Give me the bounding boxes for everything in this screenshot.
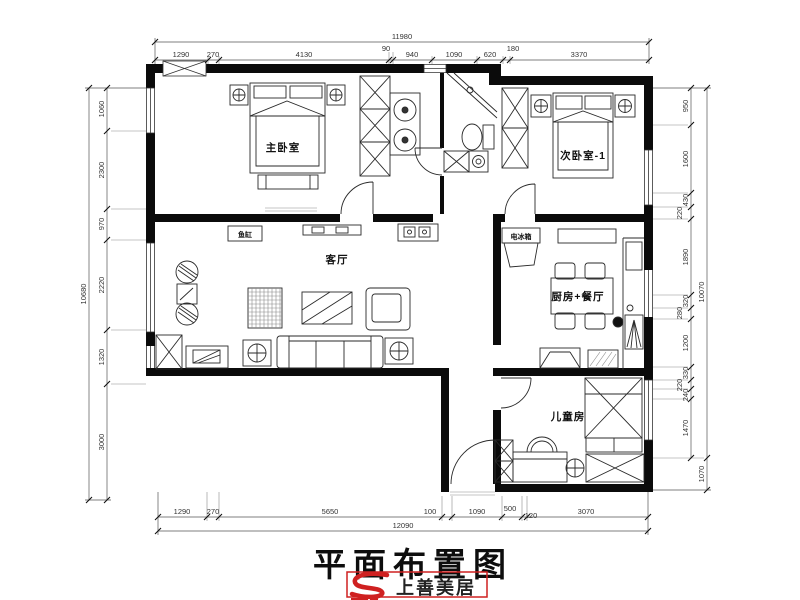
bath-door-arc: [415, 148, 442, 175]
console-table: [303, 225, 361, 235]
entry-threshold: [450, 492, 495, 495]
sofa: [277, 336, 383, 368]
room-label-master: 主卧室: [266, 141, 301, 154]
window-right-bedroom-icon: [644, 150, 653, 205]
window-right-kitchen-icon: [644, 270, 653, 317]
bed-bench: [258, 175, 318, 189]
window-top-left-icon: [163, 61, 206, 76]
second-bedroom-furniture: [502, 88, 635, 178]
dimension-chain-bottom: 1290 270 5650 100 1090 500 120 3070 1209…: [155, 492, 651, 535]
rug: [248, 288, 282, 328]
dining-chair: [555, 313, 575, 329]
dim-label: 2220: [97, 277, 106, 294]
kitchen-counter: [623, 238, 644, 370]
dim-label: 90: [382, 44, 390, 53]
kids-bed: [585, 378, 642, 452]
dim-label: 3370: [571, 50, 588, 59]
dim-label: 1320: [97, 349, 106, 366]
master-bed: [250, 83, 325, 173]
small-appliance: [588, 350, 618, 368]
dim-label: 270: [207, 507, 220, 516]
desk-chair: [527, 437, 557, 452]
dim-total-label: 11980: [392, 32, 412, 41]
dim-label: 430: [681, 194, 690, 207]
dim-label: 1070: [697, 466, 706, 483]
dim-label: 500: [504, 504, 517, 513]
dining-chair: [585, 313, 605, 329]
vanity-sinks: [390, 93, 420, 155]
dimension-chain-right: 950 1600 430 220 1890 320 280 1200 330 2…: [653, 85, 711, 493]
armchair: [366, 288, 410, 330]
dim-label: 220: [675, 207, 684, 220]
pass-counter: [398, 224, 438, 241]
master-door-arc: [341, 182, 373, 214]
dim-label: 120: [525, 511, 538, 520]
dining-chair: [555, 263, 575, 279]
side-cabinet: [156, 335, 182, 369]
floor-plan-drawing: 主卧室 次卧室-1 客厅 厨房+餐厅 儿童房 电冰箱 鱼缸 1290 270 4…: [0, 0, 800, 600]
bath-cabinet: [444, 151, 469, 172]
window-left-3-icon: [146, 346, 155, 368]
dim-label: 1890: [681, 249, 690, 266]
second-bedroom-door-arc: [505, 184, 535, 214]
room-label-kitchen: 厨房+餐厅: [551, 290, 604, 303]
dining-chair: [585, 263, 605, 279]
dim-label: 970: [97, 218, 106, 231]
dim-label: 4130: [296, 50, 313, 59]
living-room-furniture: [156, 224, 438, 369]
balcony-chair: [176, 303, 198, 325]
washer-icon: [469, 151, 488, 172]
plant-table: [385, 338, 413, 364]
second-bed: [553, 93, 613, 178]
dim-label: 1200: [681, 335, 690, 352]
balcony-table: [177, 284, 197, 304]
doormat: [265, 208, 317, 211]
dim-label: 270: [207, 50, 220, 59]
second-wardrobe: [502, 88, 528, 168]
room-label-living: 客厅: [325, 253, 349, 266]
dim-label: 180: [507, 44, 520, 53]
dim-label: 100: [424, 507, 437, 516]
kids-room-furniture: [495, 378, 644, 482]
floor-plan-page: 主卧室 次卧室-1 客厅 厨房+餐厅 儿童房 电冰箱 鱼缸 1290 270 4…: [0, 0, 800, 600]
kitchen-sink-icon: [613, 305, 643, 349]
dim-label: 5650: [322, 507, 339, 516]
stool: [566, 459, 584, 477]
dim-label: 1470: [681, 420, 690, 437]
dim-label: 330: [681, 367, 690, 380]
kitchen-console: [558, 229, 616, 243]
dim-label: 1600: [681, 151, 690, 168]
master-bedroom-furniture: [230, 76, 420, 211]
toilet-icon: [462, 124, 494, 150]
room-label-second: 次卧室-1: [560, 149, 606, 162]
dim-label: 1090: [469, 507, 486, 516]
dim-total-label: 10070: [697, 282, 706, 303]
dim-label: 320: [681, 295, 690, 308]
dim-label: 1290: [173, 50, 190, 59]
brand-name: 上善美居: [396, 577, 476, 598]
dim-label: 3070: [578, 507, 595, 516]
plant-table: [243, 340, 271, 366]
dim-label: 2300: [97, 162, 106, 179]
tv-cabinet: [186, 346, 228, 368]
dimension-chain-top: 1290 270 4130 90 940 1090 620 180 3370 1…: [152, 32, 652, 64]
label-fridge: 电冰箱: [511, 232, 532, 241]
coffee-table: [302, 292, 352, 324]
kids-door-arc: [501, 378, 531, 408]
label-fish-tank: 鱼缸: [238, 230, 252, 239]
dim-label: 1290: [174, 507, 191, 516]
dim-label: 1090: [446, 50, 463, 59]
doors: [341, 148, 535, 495]
dim-label: 240: [681, 389, 690, 402]
window-bath-icon: [424, 64, 446, 73]
window-left-2-icon: [146, 243, 155, 332]
dim-label: 1060: [97, 101, 106, 118]
stove-icon: [540, 348, 580, 368]
kids-desk: [513, 452, 567, 482]
dim-total-label: 12090: [393, 521, 414, 530]
bathroom-fixtures: [444, 73, 497, 172]
kids-wardrobe: [586, 454, 644, 482]
entry-door-arc: [451, 440, 495, 484]
master-wardrobe: [360, 76, 390, 176]
dim-label: 620: [484, 50, 497, 59]
dim-label: 280: [675, 307, 684, 320]
dim-label: 940: [406, 50, 419, 59]
windows: [146, 61, 653, 440]
dim-label: 950: [681, 100, 690, 113]
dimension-chain-left: 1060 2300 970 2220 1320 3000 10680: [79, 85, 146, 503]
window-left-1-icon: [146, 88, 155, 133]
balcony-chair: [176, 261, 198, 283]
window-right-kids-icon: [644, 380, 653, 440]
room-label-kids: 儿童房: [550, 410, 586, 423]
dim-label: 3000: [97, 434, 106, 451]
dim-total-label: 10680: [79, 284, 88, 305]
